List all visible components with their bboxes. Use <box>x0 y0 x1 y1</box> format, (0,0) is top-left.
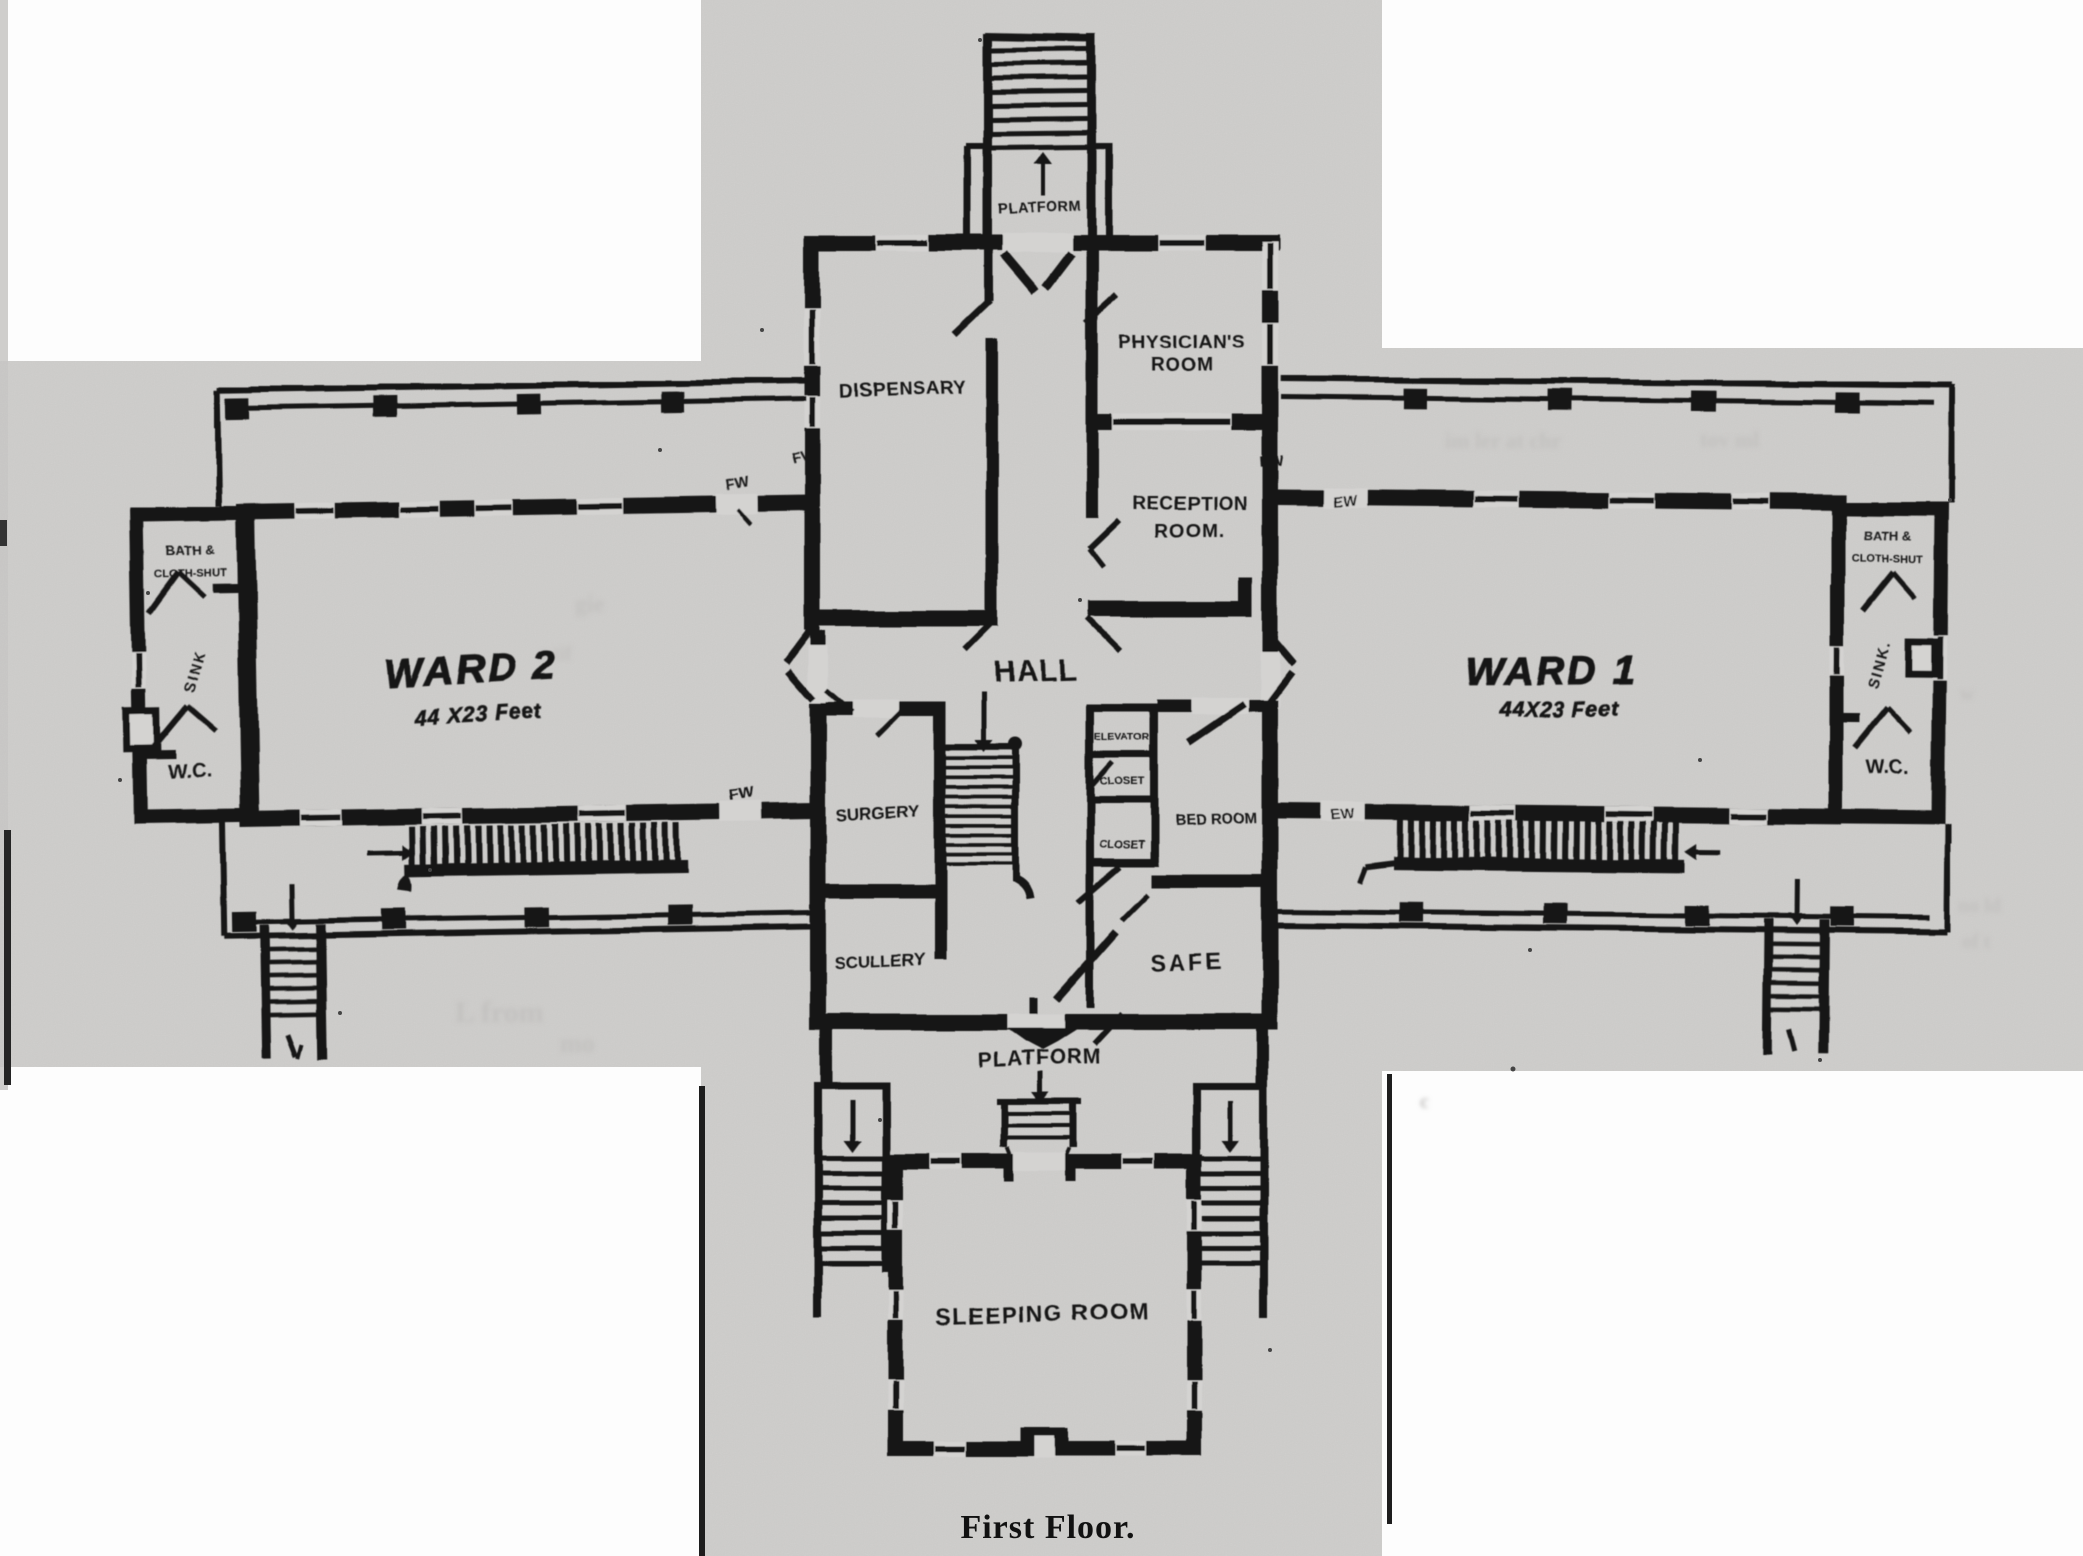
svg-text:W.C.: W.C. <box>1866 756 1910 779</box>
svg-text:L from: L from <box>455 996 544 1029</box>
svg-text:BATH &: BATH & <box>166 542 214 558</box>
svg-text:HALL: HALL <box>992 654 1077 690</box>
svg-text:EW: EW <box>1330 806 1356 824</box>
svg-text:EW: EW <box>1259 451 1285 470</box>
svg-text:ELEVATOR: ELEVATOR <box>1094 731 1150 743</box>
svg-text:no ld: no ld <box>1958 895 2001 917</box>
svg-text:BATH &: BATH & <box>1863 529 1911 544</box>
svg-text:DISPENSARY: DISPENSARY <box>839 377 967 402</box>
svg-text:SAFE: SAFE <box>1151 949 1225 978</box>
svg-text:of t: of t <box>1962 931 1991 953</box>
svg-text:PLATFORM: PLATFORM <box>998 199 1082 218</box>
svg-text:c: c <box>1420 1091 1429 1113</box>
svg-text:EW: EW <box>1333 492 1359 510</box>
svg-text:CLOTH-SHUT: CLOTH-SHUT <box>1851 553 1923 566</box>
svg-text:im ler at chr: im ler at chr <box>1445 428 1562 453</box>
svg-text:WARD 1: WARD 1 <box>1466 649 1640 694</box>
svg-text:mo: mo <box>560 1029 595 1058</box>
svg-text:44X23 Feet: 44X23 Feet <box>1498 698 1619 722</box>
svg-text:PHYSICIAN'S: PHYSICIAN'S <box>1119 332 1245 353</box>
svg-text:W.C.: W.C. <box>167 760 211 784</box>
svg-text:BED ROOM: BED ROOM <box>1174 810 1257 830</box>
svg-text:CLOTH-SHUT: CLOTH-SHUT <box>155 567 227 580</box>
svg-text:gie: gie <box>575 592 605 618</box>
svg-text:CLOSET: CLOSET <box>1100 776 1145 788</box>
svg-text:w: w <box>1960 683 1975 705</box>
svg-text:WARD 2: WARD 2 <box>384 644 560 697</box>
svg-text:First Floor.: First Floor. <box>960 1509 1135 1546</box>
svg-text:RECEPTION: RECEPTION <box>1132 494 1247 515</box>
svg-text:SCULLERY: SCULLERY <box>834 950 926 972</box>
svg-text:CLOSET: CLOSET <box>1100 839 1145 851</box>
svg-text:tov ml: tov ml <box>1700 427 1759 452</box>
svg-text:ROOM.: ROOM. <box>1155 522 1224 543</box>
svg-text:ROOM: ROOM <box>1150 355 1213 376</box>
svg-text:FW: FW <box>728 785 754 805</box>
svg-text:PLATFORM: PLATFORM <box>978 1045 1102 1072</box>
